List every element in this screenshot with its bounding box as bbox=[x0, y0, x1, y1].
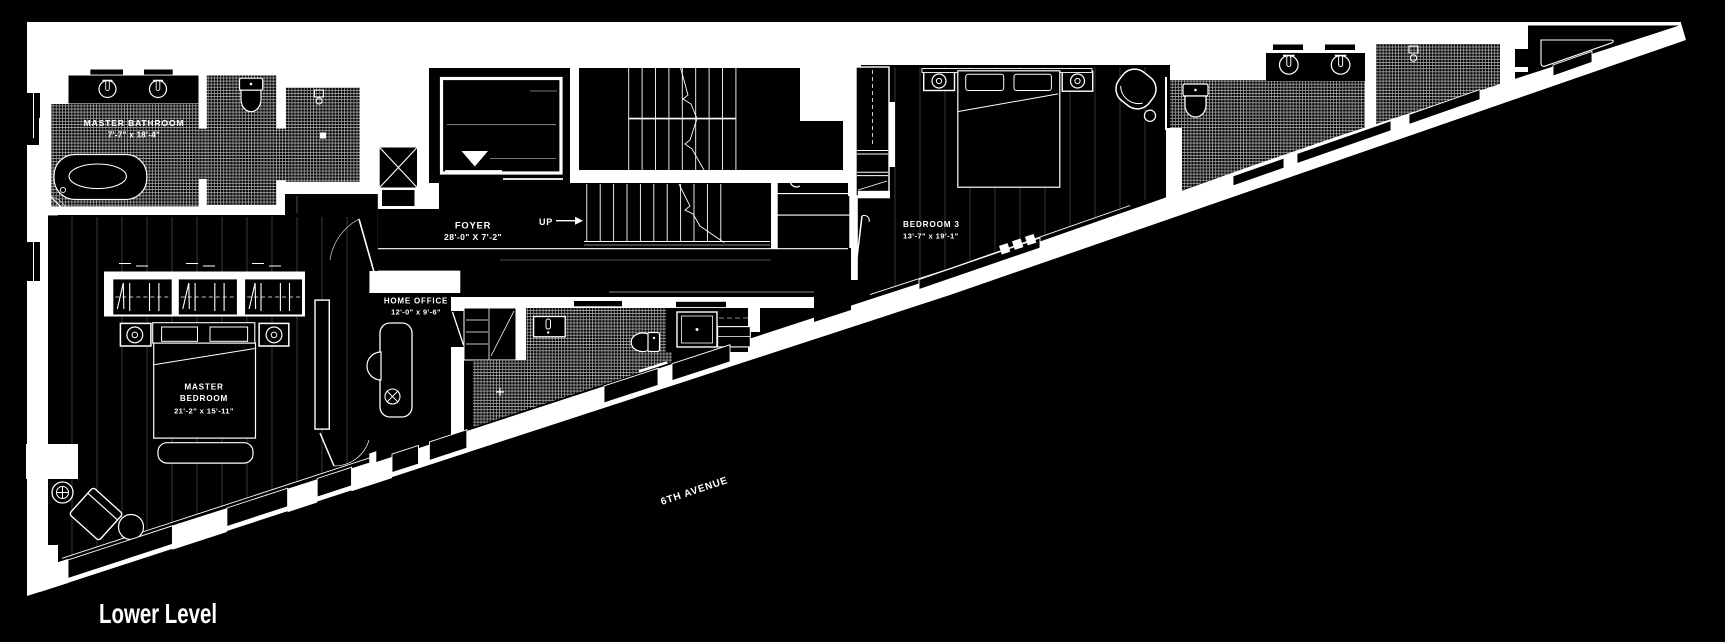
svg-text:HOME OFFICE: HOME OFFICE bbox=[384, 297, 448, 306]
svg-text:21'-2" x 15'-11": 21'-2" x 15'-11" bbox=[174, 407, 234, 416]
svg-text:MASTER: MASTER bbox=[184, 383, 223, 392]
svg-text:BEDROOM: BEDROOM bbox=[180, 394, 228, 403]
svg-text:28'-0" X 7'-2": 28'-0" X 7'-2" bbox=[444, 232, 502, 242]
svg-text:FOYER: FOYER bbox=[455, 220, 491, 231]
svg-text:MASTER BATHROOM: MASTER BATHROOM bbox=[84, 118, 185, 128]
svg-text:BEDROOM 3: BEDROOM 3 bbox=[903, 220, 960, 229]
svg-text:7'-7" x 18'-4": 7'-7" x 18'-4" bbox=[108, 131, 160, 140]
svg-text:12'-0" x 9'-6": 12'-0" x 9'-6" bbox=[391, 308, 441, 317]
svg-text:13'-7" x 19'-1": 13'-7" x 19'-1" bbox=[903, 232, 959, 241]
svg-text:Lower Level: Lower Level bbox=[99, 598, 217, 629]
svg-text:UP: UP bbox=[539, 217, 553, 227]
